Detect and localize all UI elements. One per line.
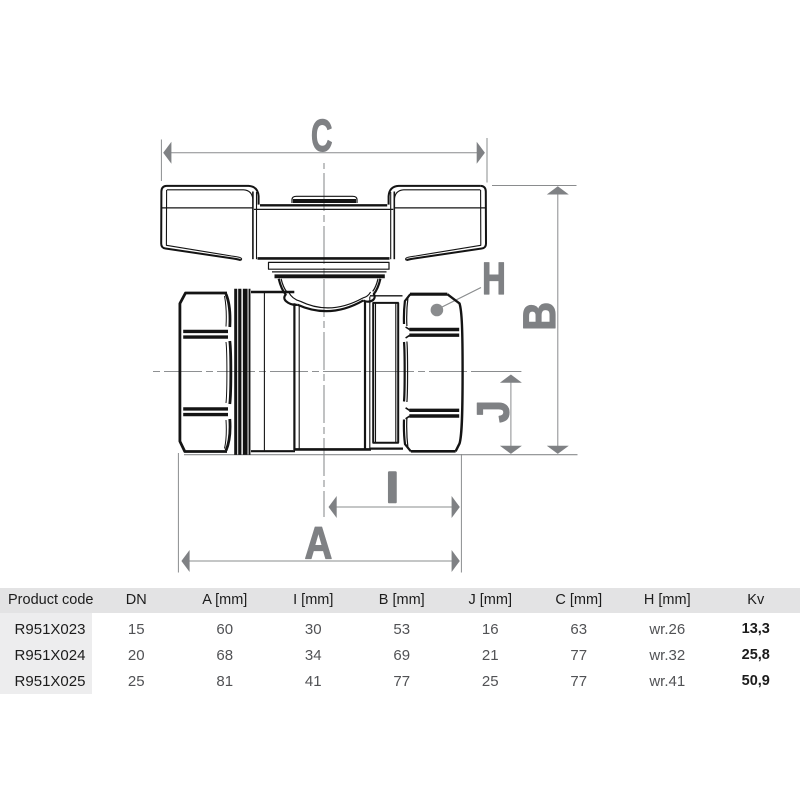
- svg-text:A: A: [305, 517, 333, 568]
- svg-text:B: B: [515, 302, 565, 331]
- svg-text:C: C: [311, 111, 332, 162]
- svg-text:H: H: [482, 254, 506, 304]
- svg-text:J: J: [469, 400, 519, 423]
- svg-text:I: I: [386, 464, 398, 512]
